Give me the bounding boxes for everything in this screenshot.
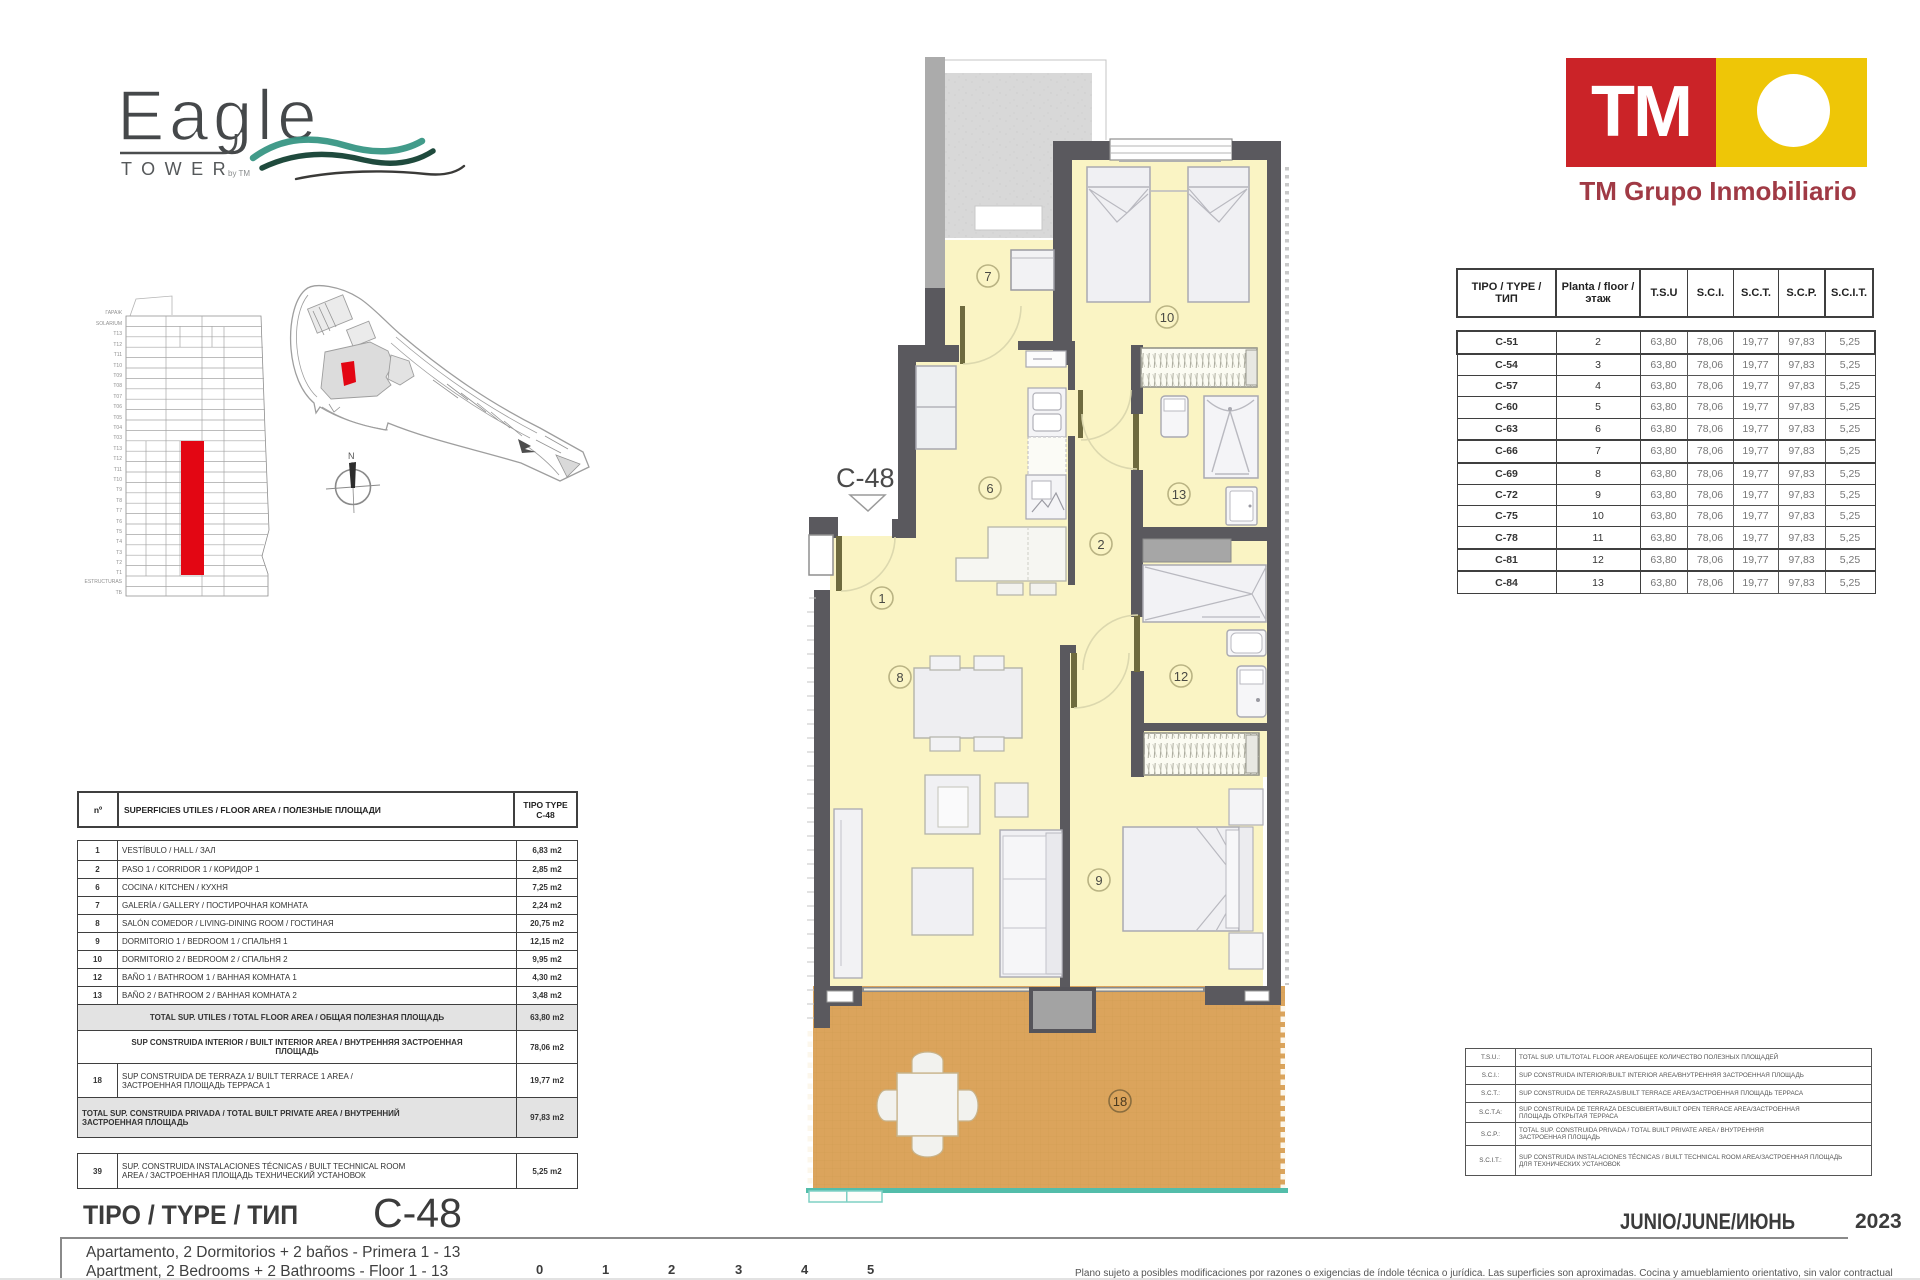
svg-text:8: 8 xyxy=(896,670,903,685)
svg-text:Т08: Т08 xyxy=(113,383,122,389)
svg-text:Т5: Т5 xyxy=(116,529,122,535)
svg-text:Т05: Т05 xyxy=(113,415,122,421)
svg-text:9: 9 xyxy=(1095,873,1102,888)
svg-text:ТБ: ТБ xyxy=(116,590,123,596)
svg-text:13: 13 xyxy=(1172,487,1186,502)
svg-text:Т06: Т06 xyxy=(113,404,122,410)
svg-text:Т4: Т4 xyxy=(116,539,122,545)
svg-text:7: 7 xyxy=(984,269,991,284)
svg-text:SOLARIUM: SOLARIUM xyxy=(96,321,122,327)
svg-text:Т13: Т13 xyxy=(113,331,122,337)
svg-text:Т11: Т11 xyxy=(114,352,122,358)
svg-text:Т07: Т07 xyxy=(113,394,122,400)
svg-text:6: 6 xyxy=(986,481,993,496)
svg-text:Т10: Т10 xyxy=(113,363,122,369)
svg-text:Т11: Т11 xyxy=(114,467,122,473)
svg-text:Т3: Т3 xyxy=(116,550,122,556)
svg-text:Т09: Т09 xyxy=(113,373,122,379)
svg-text:Т7: Т7 xyxy=(116,508,122,514)
svg-text:Т10: Т10 xyxy=(113,477,122,483)
svg-text:Т13: Т13 xyxy=(113,446,122,452)
svg-text:12: 12 xyxy=(1174,669,1188,684)
svg-text:1: 1 xyxy=(878,591,885,606)
svg-text:N: N xyxy=(348,451,355,461)
svg-text:ESTRUCTURAS: ESTRUCTURAS xyxy=(84,579,122,585)
svg-text:Т12: Т12 xyxy=(113,456,122,462)
svg-text:Т8: Т8 xyxy=(116,498,122,504)
svg-text:Т9: Т9 xyxy=(116,487,122,493)
svg-text:Т04: Т04 xyxy=(113,425,122,431)
svg-text:C-48: C-48 xyxy=(836,463,895,493)
svg-text:Т03: Т03 xyxy=(113,435,122,441)
svg-text:ГАРАЖ: ГАРАЖ xyxy=(105,310,122,316)
svg-text:Т6: Т6 xyxy=(116,519,122,525)
svg-text:10: 10 xyxy=(1160,310,1174,325)
svg-text:18: 18 xyxy=(1113,1094,1127,1109)
svg-text:Т12: Т12 xyxy=(113,342,122,348)
svg-text:Т2: Т2 xyxy=(116,560,122,566)
svg-text:Т1: Т1 xyxy=(116,570,122,576)
svg-text:2: 2 xyxy=(1097,537,1104,552)
